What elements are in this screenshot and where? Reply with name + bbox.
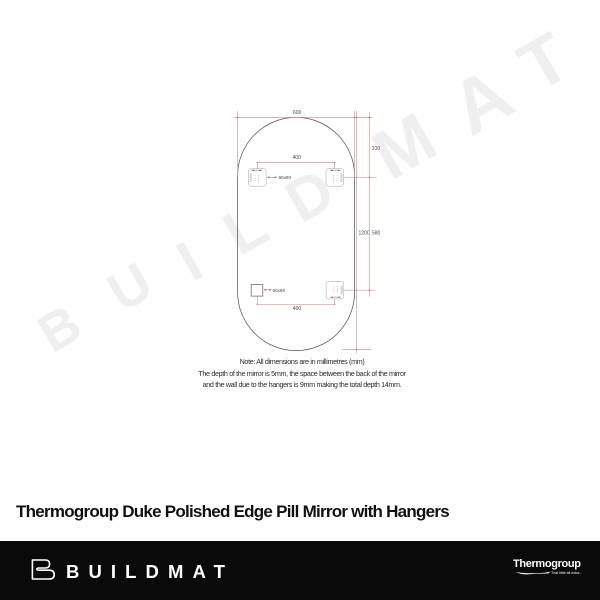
svg-text:310: 310: [372, 146, 381, 152]
svg-text:600: 600: [293, 110, 302, 116]
svg-text:400: 400: [293, 306, 302, 312]
svg-text:90x90: 90x90: [279, 175, 292, 180]
svg-text:1200: 1200: [359, 230, 370, 236]
svg-text:60x60: 60x60: [273, 288, 286, 293]
svg-text:400: 400: [293, 155, 302, 161]
svg-text:580: 580: [372, 230, 381, 236]
